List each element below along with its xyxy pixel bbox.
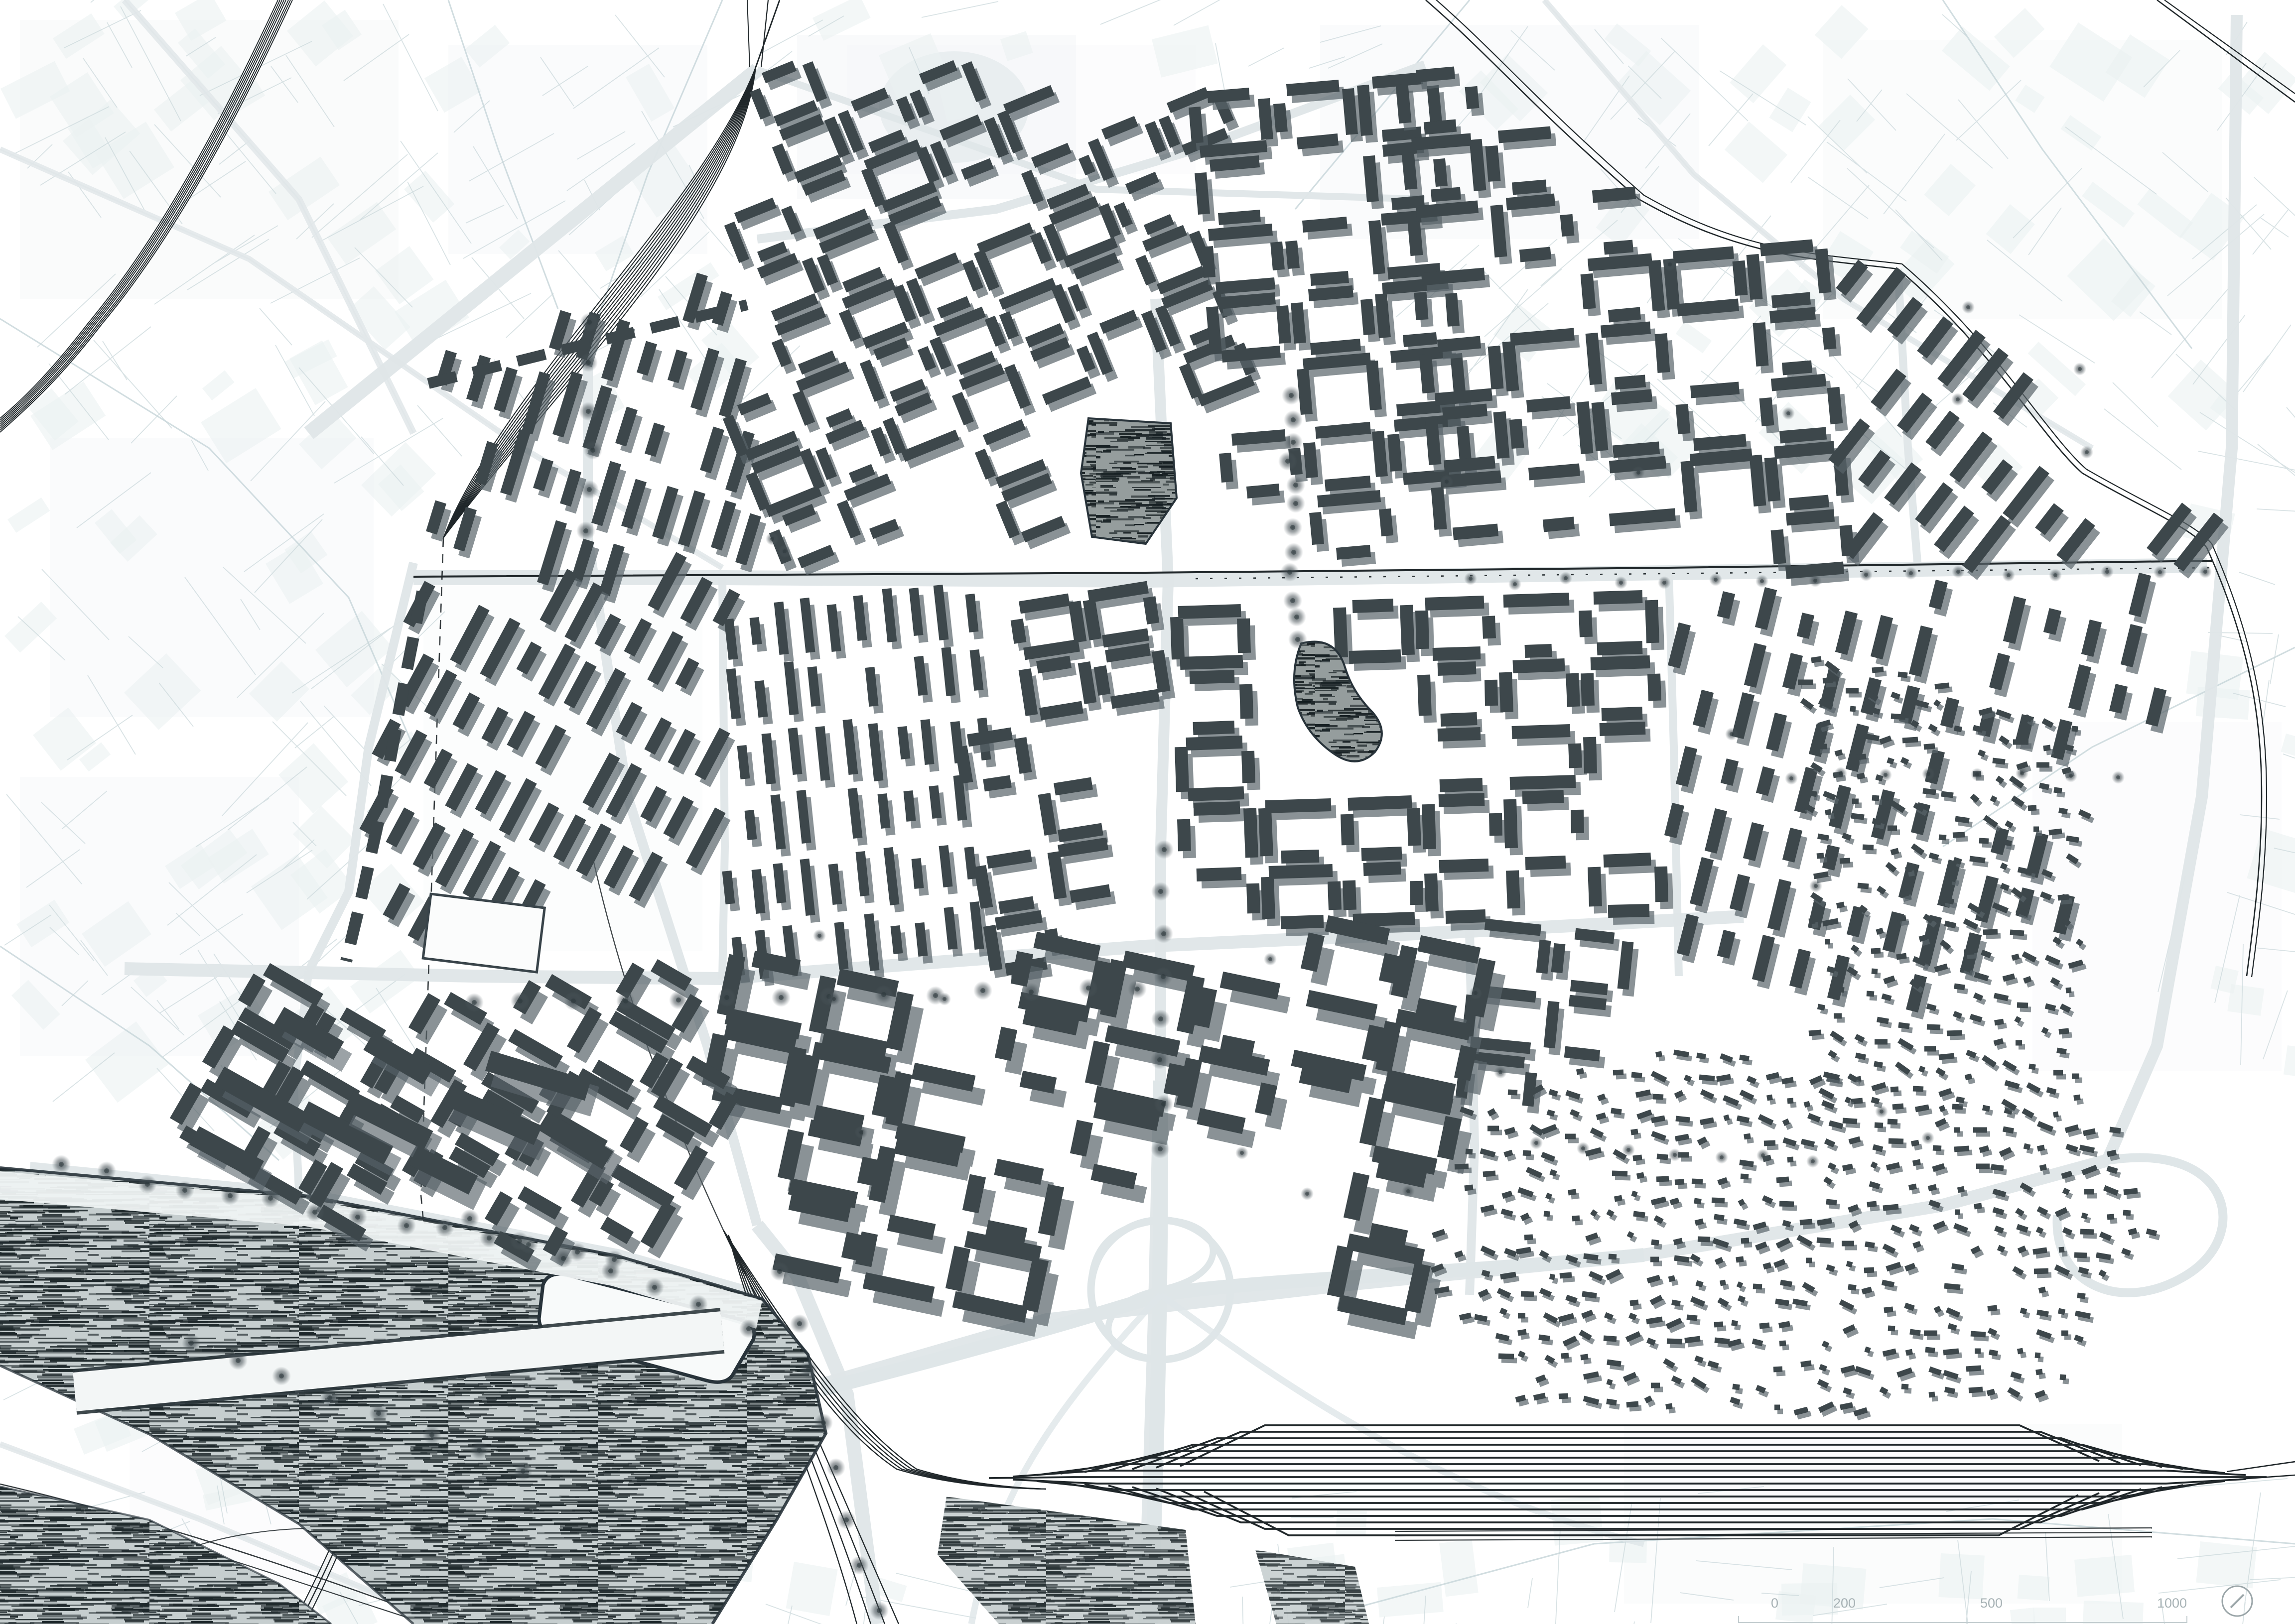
svg-text:200: 200 (1833, 1596, 1856, 1611)
svg-text:500: 500 (1980, 1596, 2003, 1611)
svg-text:1000: 1000 (2157, 1596, 2187, 1611)
svg-text:0: 0 (1771, 1596, 1778, 1611)
